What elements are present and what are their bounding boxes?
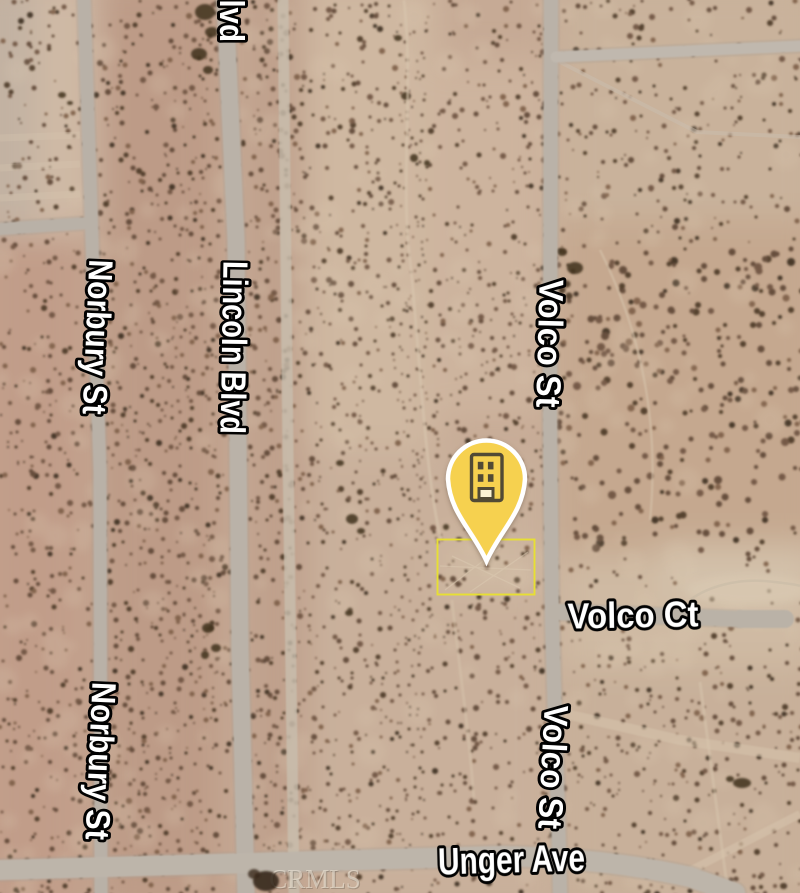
svg-text:Blvd: Blvd <box>212 0 250 42</box>
svg-text:Norbury St: Norbury St <box>78 681 123 841</box>
svg-text:Volco St: Volco St <box>528 279 569 408</box>
svg-text:Volco St: Volco St <box>530 704 574 830</box>
svg-text:CRMLS: CRMLS <box>269 864 361 893</box>
svg-text:Volco Ct: Volco Ct <box>567 593 699 636</box>
svg-text:Unger Ave: Unger Ave <box>437 838 585 884</box>
svg-text:Lincoln Blvd: Lincoln Blvd <box>212 261 254 435</box>
svg-text:Norbury St: Norbury St <box>75 259 120 416</box>
